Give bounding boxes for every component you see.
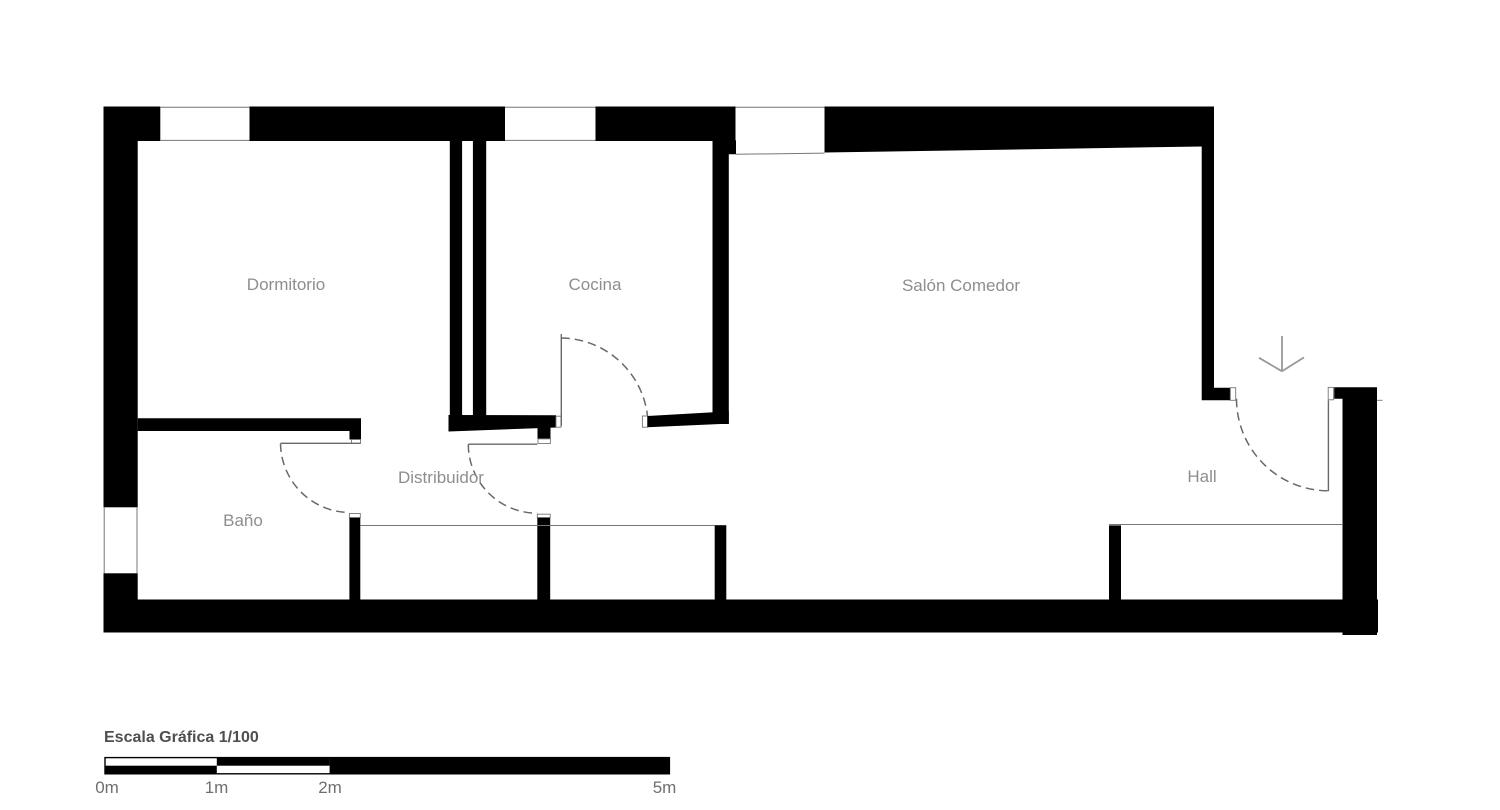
svg-text:Baño: Baño (223, 511, 263, 530)
svg-text:5m: 5m (653, 778, 677, 797)
svg-text:Hall: Hall (1187, 467, 1216, 486)
svg-text:1m: 1m (205, 778, 229, 797)
svg-text:Cocina: Cocina (569, 275, 622, 294)
svg-text:2m: 2m (318, 778, 342, 797)
svg-text:0m: 0m (95, 778, 119, 797)
svg-text:Dormitorio: Dormitorio (247, 275, 325, 294)
svg-text:Salón Comedor: Salón Comedor (902, 276, 1020, 295)
svg-text:Distribuidor: Distribuidor (398, 468, 484, 487)
svg-text:Escala Gráfica 1/100: Escala Gráfica 1/100 (104, 729, 259, 746)
